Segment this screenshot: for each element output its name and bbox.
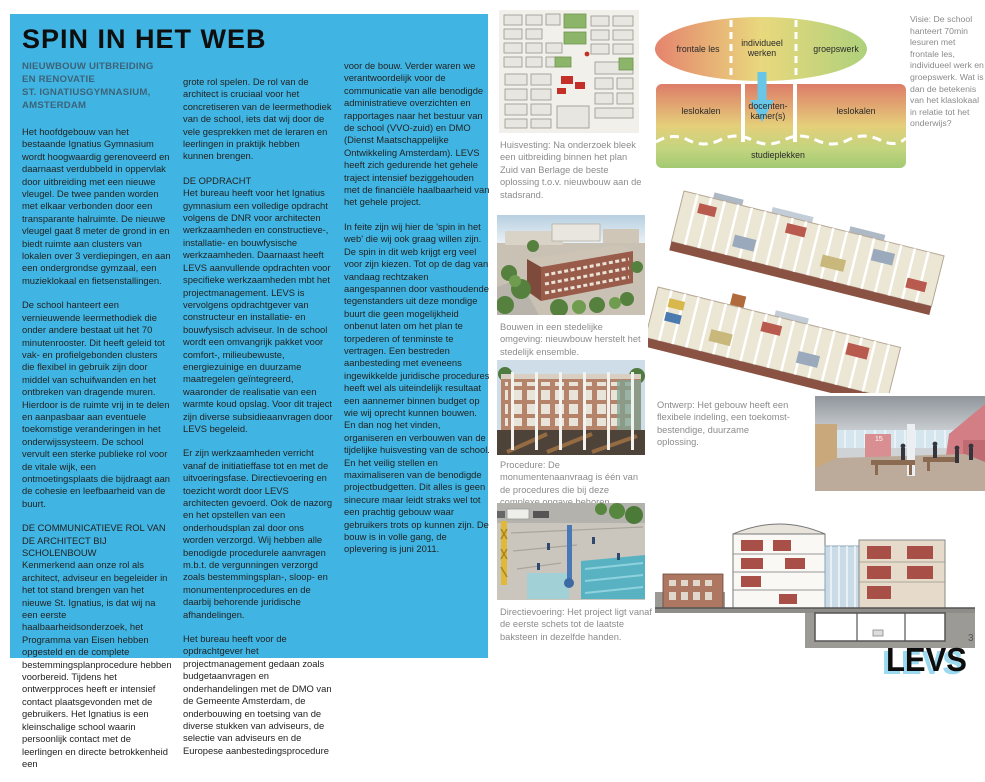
paragraph: In feite zijn wij hier de 'spin in het w…	[344, 221, 490, 556]
aerial-render-figure	[497, 215, 645, 315]
caption-visie: Visie: De school hanteert 70min lesuren …	[910, 14, 985, 130]
article-subtitle: NIEUWBOUW UITBREIDING EN RENOVATIE ST. I…	[22, 60, 154, 112]
paragraph: grote rol spelen. De rol van de architec…	[183, 76, 333, 163]
diagram-label-studieplekken: studieplekken	[652, 151, 904, 161]
diagram-label-groepswerk: groepswerk	[798, 45, 874, 55]
paragraph: Kenmerkend aan onze rol als architect, a…	[22, 559, 172, 770]
section-heading: DE COMMUNICATIEVE ROL VAN DE ARCHITECT B…	[22, 522, 172, 559]
paragraph: Het bureau heeft voor de opdrachtgever h…	[183, 633, 333, 757]
axonometric-plans-figure	[648, 165, 985, 393]
section-heading: DE OPDRACHT	[183, 175, 333, 187]
paragraph: voor de bouw. Verder waren we verantwoor…	[344, 60, 490, 209]
page-number: 3	[968, 633, 974, 644]
levs-logo: LEVS	[886, 641, 967, 680]
caption-ontwerp: Ontwerp: Het gebouw heeft een flexibele …	[657, 399, 793, 449]
section-drawing-figure	[655, 512, 975, 650]
paragraph: De school hanteert een vernieuwende leer…	[22, 299, 172, 510]
diagram-label-leslokalen-left: leslokalen	[666, 107, 736, 117]
diagram-label-individueel-werken: individueel werken	[736, 39, 788, 58]
diagram-label-docentenkamers: docenten- kamer(s)	[742, 102, 794, 121]
monument-construction-photo	[497, 360, 645, 455]
excavation-photo	[497, 503, 645, 600]
article-panel: SPIN IN HET WEB NIEUWBOUW UITBREIDING EN…	[10, 14, 488, 658]
interior-render-figure: 15	[815, 396, 985, 491]
caption-huisvesting: Huisvesting: Na onderzoek bleek een uitb…	[500, 139, 645, 201]
caption-bouwen: Bouwen in een stedelijke omgeving: nieuw…	[500, 321, 648, 358]
text-column-2: grote rol spelen. De rol van de architec…	[183, 76, 333, 769]
text-column-3: voor de bouw. Verder waren we verantwoor…	[344, 60, 490, 568]
text-column-1: Het hoofdgebouw van het bestaande Ignati…	[22, 126, 172, 782]
paragraph: Het hoofdgebouw van het bestaande Ignati…	[22, 126, 172, 287]
interior-wall-number: 15	[875, 436, 883, 443]
paragraph: Het bureau heeft voor het Ignatius gymna…	[183, 187, 333, 435]
caption-directievoering: Directievoering: Het project ligt vanaf …	[500, 606, 652, 643]
concept-diagram: frontale les individueel werken groepswe…	[648, 8, 908, 170]
diagram-label-frontale-les: frontale les	[658, 45, 738, 55]
site-map-figure	[499, 10, 639, 133]
page-title: SPIN IN HET WEB	[22, 24, 267, 55]
diagram-label-leslokalen-right: leslokalen	[816, 107, 896, 117]
paragraph: Er zijn werkzaamheden verricht vanaf de …	[183, 447, 333, 621]
caption-procedure: Procedure: De monumentenaanvraag is één …	[500, 459, 648, 509]
